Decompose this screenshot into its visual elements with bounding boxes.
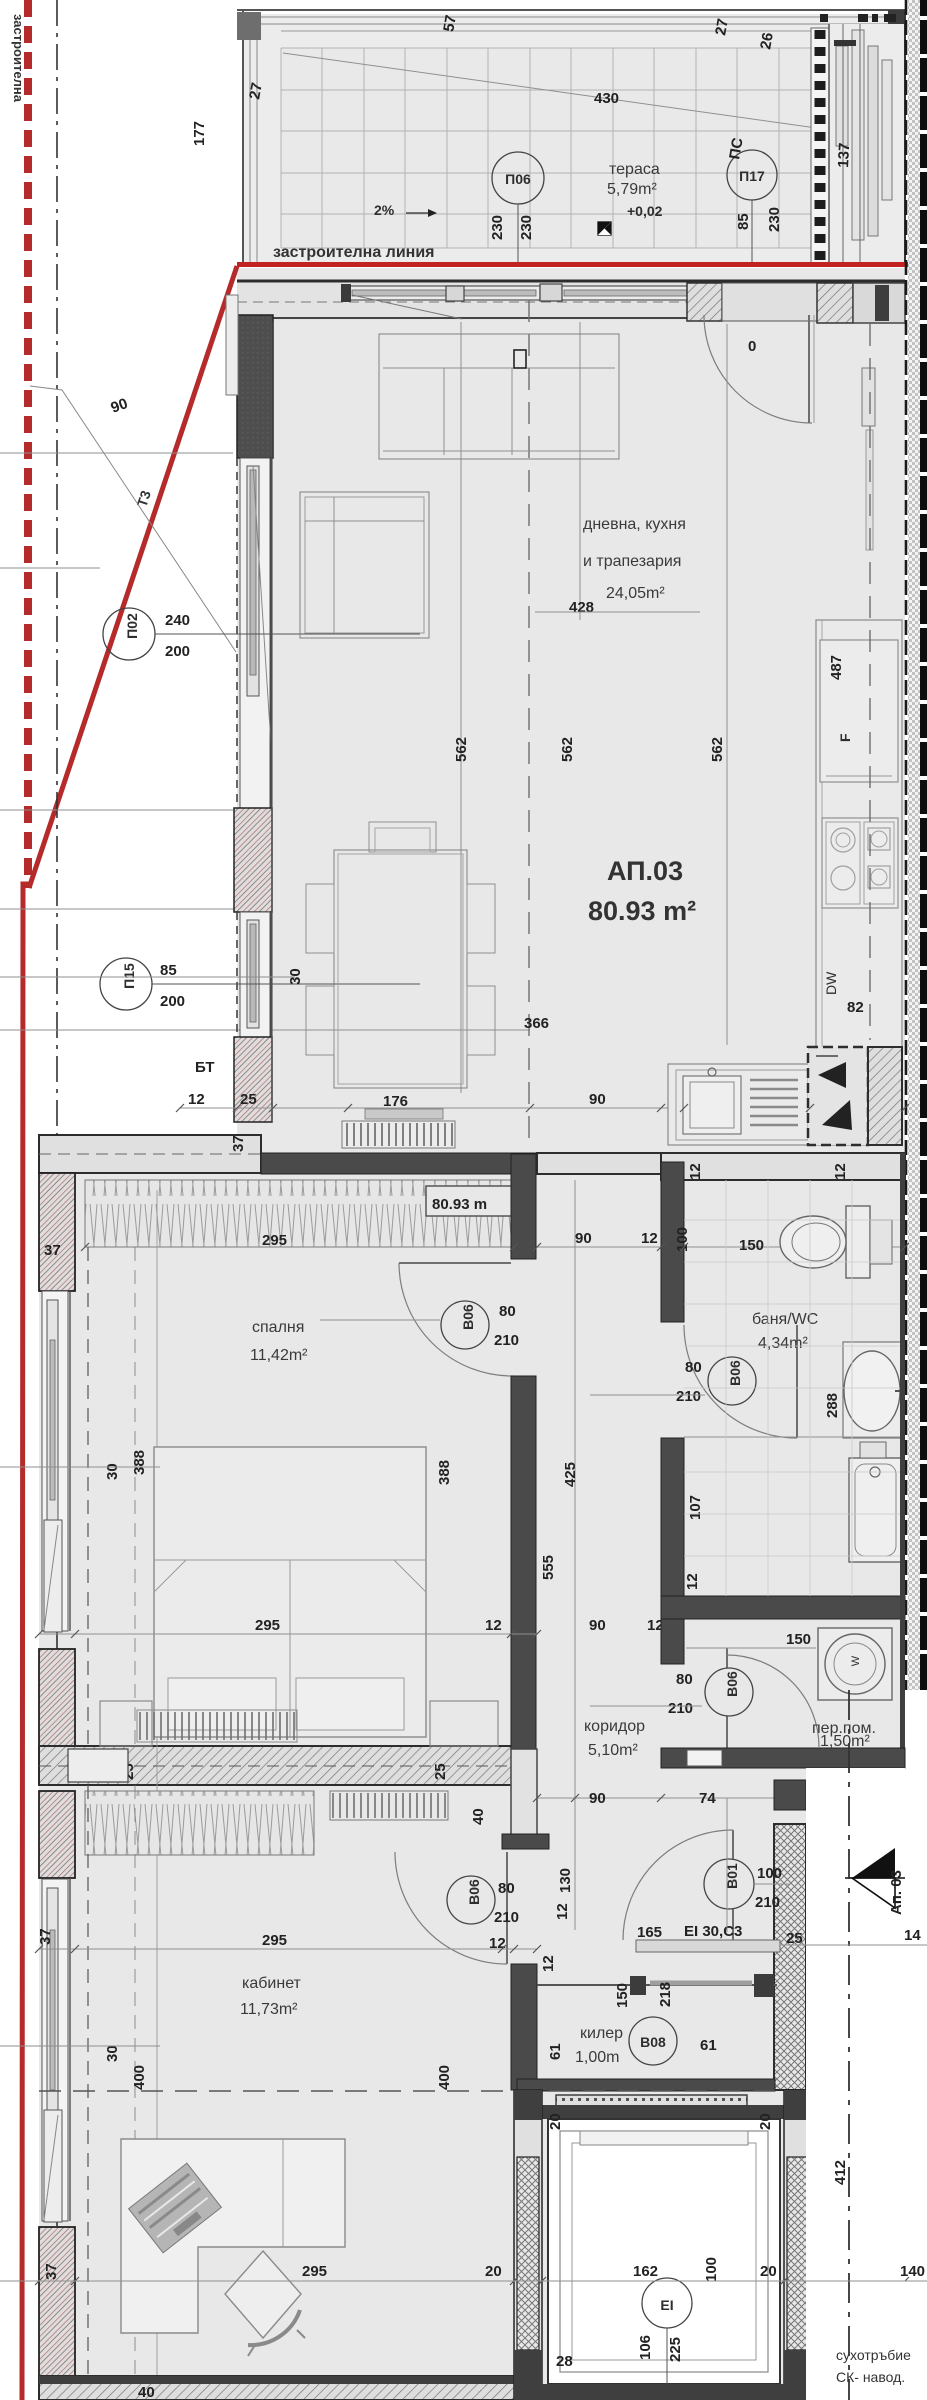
svg-text:210: 210 [494, 1332, 519, 1349]
svg-text:555: 555 [540, 1555, 557, 1580]
svg-text:F: F [837, 733, 853, 742]
svg-text:П06: П06 [505, 171, 531, 187]
svg-text:80: 80 [676, 1671, 693, 1688]
svg-text:24,05m²: 24,05m² [606, 585, 665, 602]
svg-text:застроителна линия: застроителна линия [273, 244, 435, 261]
svg-text:В08: В08 [640, 2034, 666, 2050]
svg-text:сухотръбие: сухотръбие [836, 2347, 911, 2363]
svg-text:218: 218 [657, 1982, 674, 2007]
svg-text:26: 26 [757, 31, 777, 50]
svg-text:1,50m²: 1,50m² [820, 1733, 870, 1750]
svg-text:240: 240 [165, 612, 190, 629]
svg-text:150: 150 [786, 1631, 811, 1648]
svg-text:28: 28 [556, 2353, 573, 2370]
svg-text:425: 425 [562, 1462, 579, 1487]
svg-text:40: 40 [470, 1808, 487, 1825]
svg-text:EI 30,C3: EI 30,C3 [684, 1923, 742, 1940]
svg-text:150: 150 [739, 1237, 764, 1254]
svg-text:230: 230 [489, 215, 506, 240]
svg-text:12: 12 [485, 1617, 502, 1634]
svg-text:1,00m: 1,00m [575, 2049, 619, 2066]
svg-text:61: 61 [547, 2043, 564, 2060]
svg-text:27: 27 [712, 17, 732, 36]
svg-text:225: 225 [667, 2337, 684, 2362]
svg-text:487: 487 [828, 655, 845, 680]
svg-text:20: 20 [547, 2113, 564, 2130]
svg-text:12: 12 [540, 1955, 557, 1972]
svg-text:80: 80 [499, 1303, 516, 1320]
svg-text:80.93 m: 80.93 m [432, 1196, 487, 1213]
svg-text:74: 74 [699, 1790, 716, 1807]
svg-text:90: 90 [589, 1091, 606, 1108]
svg-text:210: 210 [755, 1894, 780, 1911]
svg-text:85: 85 [160, 962, 177, 979]
svg-text:295: 295 [262, 1932, 287, 1949]
svg-text:85: 85 [735, 213, 752, 230]
svg-text:30: 30 [104, 2045, 121, 2062]
svg-text:спалня: спалня [252, 1319, 304, 1336]
svg-text:388: 388 [436, 1460, 453, 1485]
svg-text:80.93 m²: 80.93 m² [588, 896, 696, 926]
svg-text:37: 37 [230, 1135, 247, 1152]
svg-text:82: 82 [847, 999, 864, 1016]
svg-text:20: 20 [760, 2263, 777, 2280]
svg-text:100: 100 [757, 1865, 782, 1882]
svg-text:П02: П02 [124, 613, 140, 639]
svg-text:БТ: БТ [195, 1059, 215, 1076]
svg-text:баня/WC: баня/WC [752, 1311, 818, 1328]
svg-text:562: 562 [559, 737, 576, 762]
svg-text:176: 176 [383, 1093, 408, 1110]
svg-text:25: 25 [240, 1091, 257, 1108]
svg-text:90: 90 [575, 1230, 592, 1247]
svg-text:107: 107 [687, 1495, 704, 1520]
svg-text:25: 25 [432, 1763, 449, 1780]
svg-text:61: 61 [700, 2037, 717, 2054]
svg-text:12: 12 [832, 1163, 849, 1180]
svg-text:162: 162 [633, 2263, 658, 2280]
svg-text:12: 12 [684, 1573, 701, 1590]
svg-text:562: 562 [709, 737, 726, 762]
svg-text:АП.03: АП.03 [607, 856, 683, 886]
svg-text:230: 230 [518, 215, 535, 240]
svg-text:12: 12 [641, 1230, 658, 1247]
svg-text:37: 37 [43, 2263, 60, 2280]
svg-text:14: 14 [904, 1927, 921, 1944]
svg-text:130: 130 [557, 1868, 574, 1893]
svg-text:428: 428 [569, 599, 594, 616]
svg-text:165: 165 [637, 1924, 662, 1941]
svg-text:57: 57 [440, 14, 460, 33]
svg-text:100: 100 [703, 2257, 720, 2282]
svg-text:37: 37 [44, 1242, 61, 1259]
svg-text:230: 230 [766, 207, 783, 232]
svg-text:DW: DW [823, 971, 839, 995]
svg-text:400: 400 [131, 2065, 148, 2090]
svg-text:+0,02: +0,02 [627, 203, 663, 219]
svg-text:37: 37 [37, 1928, 54, 1945]
svg-text:кабинет: кабинет [242, 1975, 302, 1992]
svg-text:коридор: коридор [584, 1718, 645, 1735]
svg-text:В06: В06 [727, 1360, 743, 1386]
svg-text:В06: В06 [460, 1304, 476, 1330]
svg-text:25: 25 [786, 1930, 803, 1947]
svg-text:5,79m²: 5,79m² [607, 181, 657, 198]
svg-text:застроителна: застроителна [11, 14, 26, 103]
svg-text:90: 90 [589, 1790, 606, 1807]
svg-text:0: 0 [748, 338, 756, 355]
svg-text:295: 295 [302, 2263, 327, 2280]
svg-text:EI: EI [660, 2297, 673, 2313]
svg-text:562: 562 [453, 737, 470, 762]
svg-text:210: 210 [494, 1909, 519, 1926]
svg-text:П15: П15 [121, 963, 137, 989]
svg-text:11,73m²: 11,73m² [240, 2001, 298, 2018]
svg-text:388: 388 [131, 1450, 148, 1475]
svg-text:400: 400 [436, 2065, 453, 2090]
svg-text:80: 80 [685, 1359, 702, 1376]
svg-text:тераса: тераса [609, 161, 660, 178]
svg-text:295: 295 [262, 1232, 287, 1249]
svg-text:2%: 2% [374, 202, 395, 218]
svg-text:137: 137 [835, 142, 853, 168]
svg-text:дневна, кухня: дневна, кухня [583, 516, 686, 533]
svg-text:150: 150 [614, 1983, 631, 2008]
svg-text:20: 20 [485, 2263, 502, 2280]
svg-text:295: 295 [255, 1617, 280, 1634]
svg-text:210: 210 [676, 1388, 701, 1405]
svg-text:В06: В06 [466, 1879, 482, 1905]
svg-text:П17: П17 [739, 168, 765, 184]
svg-text:12: 12 [687, 1163, 704, 1180]
svg-text:27: 27 [246, 81, 266, 100]
svg-text:и трапезария: и трапезария [583, 553, 681, 570]
svg-text:366: 366 [524, 1015, 549, 1032]
svg-text:430: 430 [594, 90, 619, 107]
svg-text:Ап. 03: Ап. 03 [888, 1870, 905, 1915]
svg-text:288: 288 [824, 1393, 841, 1418]
svg-text:12: 12 [188, 1091, 205, 1108]
svg-text:210: 210 [668, 1700, 693, 1717]
svg-text:106: 106 [637, 2335, 654, 2360]
svg-text:20: 20 [757, 2113, 774, 2130]
svg-text:177: 177 [191, 121, 208, 146]
svg-text:200: 200 [160, 993, 185, 1010]
svg-text:килер: килер [580, 2025, 623, 2042]
svg-text:В01: В01 [724, 1863, 740, 1889]
svg-text:90: 90 [589, 1617, 606, 1634]
svg-text:5,10m²: 5,10m² [588, 1742, 638, 1759]
svg-text:4,34m²: 4,34m² [758, 1335, 808, 1352]
svg-text:W: W [850, 1655, 862, 1666]
svg-text:200: 200 [165, 643, 190, 660]
svg-text:40: 40 [138, 2384, 155, 2400]
svg-text:80: 80 [498, 1880, 515, 1897]
svg-text:11,42m²: 11,42m² [250, 1347, 308, 1364]
svg-text:140: 140 [900, 2263, 925, 2280]
svg-text:В06: В06 [724, 1671, 740, 1697]
svg-text:30: 30 [104, 1463, 121, 1480]
svg-text:412: 412 [832, 2160, 849, 2185]
svg-text:12: 12 [554, 1903, 571, 1920]
svg-text:СК- навод.: СК- навод. [836, 2369, 905, 2385]
